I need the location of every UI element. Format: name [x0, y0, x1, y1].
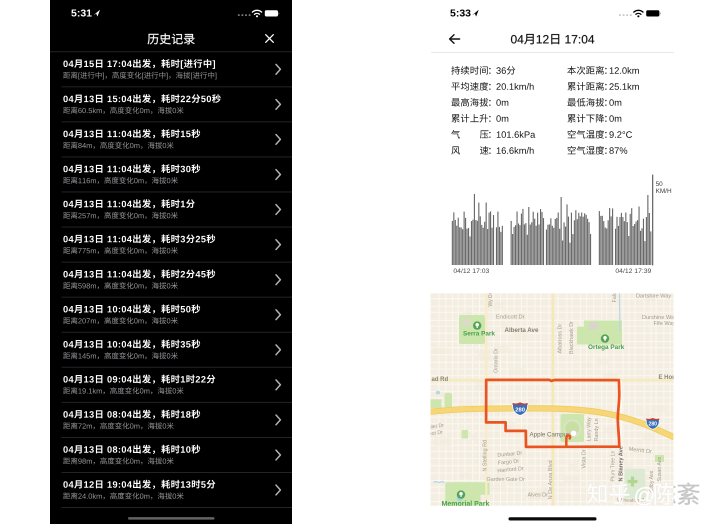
svg-text:Blackhawk Dr: Blackhawk Dr [569, 321, 575, 354]
svg-text:Albatross Dr: Albatross Dr [558, 324, 564, 354]
svg-text:KM/H: KM/H [656, 188, 672, 195]
svg-text:N De Anza Blvd: N De Anza Blvd [548, 460, 554, 499]
svg-text:Plum Tree Ln: Plum Tree Ln [610, 451, 616, 482]
svg-text:5:31: 5:31 [71, 8, 92, 20]
svg-text:@: @ [634, 484, 656, 508]
svg-text:N Blaney Ave: N Blaney Ave [618, 446, 624, 481]
svg-text:Serra Park: Serra Park [463, 331, 495, 338]
svg-text:Alves Dr: Alves Dr [528, 493, 549, 499]
svg-text:50: 50 [656, 181, 664, 188]
svg-text:Falc: Falc [612, 292, 618, 302]
svg-text:04/12 17:03: 04/12 17:03 [453, 268, 489, 275]
svg-text:04/12 17:39: 04/12 17:39 [615, 268, 651, 275]
svg-text:Randy Ln: Randy Ln [594, 418, 600, 441]
svg-text:Apple Campus: Apple Campus [530, 431, 571, 438]
svg-text:280: 280 [649, 422, 658, 428]
svg-text:ad Rd: ad Rd [432, 377, 449, 383]
svg-text:Larry Way: Larry Way [586, 417, 592, 442]
svg-text:Dartshire Way: Dartshire Way [636, 294, 671, 300]
svg-text:Fife Way: Fife Way [654, 321, 676, 327]
svg-text:Alberta Ave: Alberta Ave [505, 327, 539, 334]
svg-text:N Stelling Rd: N Stelling Rd [483, 440, 489, 471]
svg-text:Garden Gate Dr: Garden Gate Dr [487, 477, 526, 483]
svg-text:Ortega Park: Ortega Park [588, 344, 625, 351]
svg-text:280: 280 [515, 407, 525, 413]
svg-text:Ontario Dr: Ontario Dr [494, 348, 500, 373]
svg-text:5:33: 5:33 [450, 8, 471, 20]
svg-text:Wy Dr: Wy Dr [488, 292, 494, 306]
svg-text:Endicott Dr: Endicott Dr [496, 314, 525, 320]
svg-text:Vista Dr: Vista Dr [581, 449, 587, 468]
svg-text:Susan Ave: Susan Ave [657, 457, 663, 482]
